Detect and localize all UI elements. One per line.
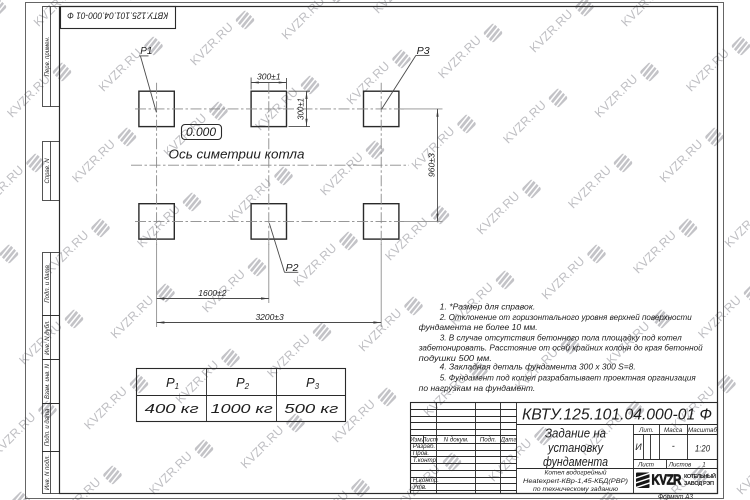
svg-text:0.000: 0.000: [186, 125, 216, 139]
svg-text:Подп. и дата: Подп. и дата: [45, 265, 51, 303]
svg-text:1:20: 1:20: [695, 444, 711, 455]
svg-text:3. В случае отсутствия бетонно: 3. В случае отсутствия бетонного пола пл…: [440, 332, 682, 342]
svg-text:Лист: Лист: [637, 461, 654, 468]
svg-text:4. Закладная деталь фундамента: 4. Закладная деталь фундамента 300 x 300…: [440, 361, 636, 371]
svg-text:Задание на: Задание на: [545, 426, 606, 441]
svg-text:Лит.: Лит.: [638, 427, 654, 434]
svg-text:Дата: Дата: [500, 436, 518, 443]
svg-text:Ось симетрии котла: Ось симетрии котла: [169, 147, 305, 162]
svg-text:Утв.: Утв.: [412, 484, 427, 491]
svg-text:Т.контр.: Т.контр.: [413, 457, 438, 464]
svg-text:2. Отклонение от горизонтально: 2. Отклонение от горизонтального уровня …: [439, 312, 692, 322]
svg-text:-: -: [672, 441, 675, 451]
svg-text:Подп. и дата: Подп. и дата: [45, 408, 51, 446]
svg-text:Масштаб: Масштаб: [688, 427, 717, 434]
svg-text:3200±3: 3200±3: [255, 312, 284, 322]
svg-text:по техническому заданию: по техническому заданию: [533, 485, 618, 493]
svg-text:Перв. примен.: Перв. примен.: [45, 37, 51, 77]
svg-text:300±1: 300±1: [257, 71, 281, 81]
svg-text:5. Фундамент под котел разраба: 5. Фундамент под котел разрабатывает про…: [440, 373, 697, 383]
svg-text:Подп.: Подп.: [480, 436, 496, 443]
svg-text:забетонировать. Расстояние от: забетонировать. Расстояние от осей крайн…: [418, 343, 703, 353]
svg-text:1: 1: [702, 461, 705, 468]
svg-text:P1: P1: [140, 45, 152, 57]
svg-text:P3: P3: [417, 45, 430, 57]
svg-text:300±1: 300±1: [296, 98, 306, 120]
svg-text:фундамента не более 10 мм.: фундамента не более 10 мм.: [419, 322, 538, 332]
svg-text:1000 кг: 1000 кг: [211, 401, 274, 416]
svg-text:Heatexpert-КВр-1,45-КБД(РВР): Heatexpert-КВр-1,45-КБД(РВР): [523, 478, 628, 485]
svg-text:ЗАВОД РЭП: ЗАВОД РЭП: [684, 481, 714, 487]
svg-text:Взам. инв. N: Взам. инв. N: [45, 363, 51, 399]
svg-text:Масса: Масса: [664, 427, 683, 434]
svg-text:установку: установку: [547, 440, 604, 455]
svg-text:КВТУ.125.101.04.000-01 Ф: КВТУ.125.101.04.000-01 Ф: [522, 407, 712, 424]
svg-text:Котел водогрейный: Котел водогрейный: [545, 469, 607, 477]
svg-text:Инв. N подл.: Инв. N подл.: [45, 455, 51, 490]
svg-text:N докум.: N докум.: [444, 436, 469, 443]
svg-text:фундамента: фундамента: [543, 454, 608, 469]
svg-text:Справ. N: Справ. N: [45, 158, 51, 184]
svg-text:КОТЕЛЬНЫЙ: КОТЕЛЬНЫЙ: [684, 472, 716, 480]
svg-text:1. *Размер для справок.: 1. *Размер для справок.: [440, 302, 536, 312]
svg-text:Н.контр.: Н.контр.: [413, 477, 439, 484]
svg-text:Формат А3: Формат А3: [658, 494, 693, 500]
svg-text:500 кг: 500 кг: [284, 401, 339, 416]
svg-text:по нагрузкам на фундамент.: по нагрузкам на фундамент.: [419, 383, 536, 393]
svg-text:Листов: Листов: [668, 461, 692, 468]
svg-text:400 кг: 400 кг: [145, 401, 200, 416]
svg-text:KVZR: KVZR: [652, 472, 682, 489]
svg-text:И: И: [635, 442, 642, 452]
svg-text:960±3: 960±3: [427, 153, 437, 177]
svg-text:КВТУ.125.101.04.000-01 Ф: КВТУ.125.101.04.000-01 Ф: [67, 10, 168, 21]
svg-text:1600±2: 1600±2: [198, 288, 227, 298]
svg-text:Инв. N дубл.: Инв. N дубл.: [45, 320, 51, 355]
svg-text:P2: P2: [286, 262, 299, 274]
